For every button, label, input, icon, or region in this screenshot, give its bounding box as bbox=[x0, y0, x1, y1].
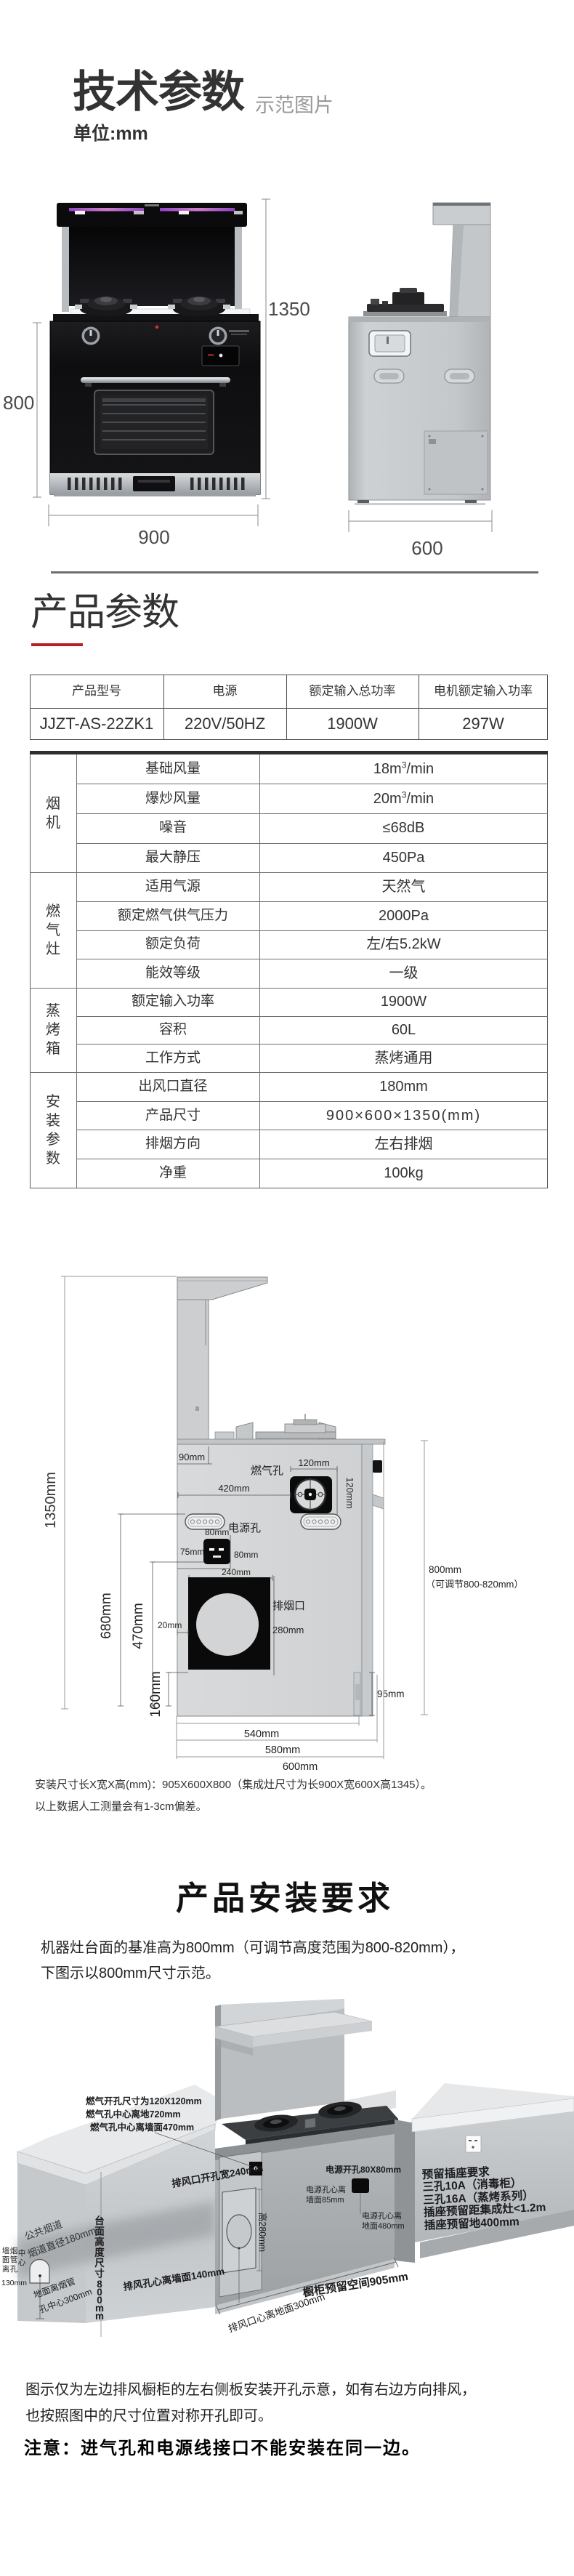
svg-text:580mm: 580mm bbox=[265, 1744, 300, 1756]
svg-text:排烟口: 排烟口 bbox=[272, 1600, 305, 1612]
svg-text:600mm: 600mm bbox=[283, 1761, 318, 1773]
svg-text:燃气开孔尺寸为120X120mm: 燃气开孔尺寸为120X120mm bbox=[86, 2096, 202, 2106]
svg-text:120mm: 120mm bbox=[298, 1457, 329, 1468]
svg-text:电源孔心离: 电源孔心离 bbox=[362, 2210, 402, 2221]
svg-text:280mm: 280mm bbox=[272, 1625, 304, 1635]
svg-text:120mm: 120mm bbox=[344, 1477, 355, 1508]
svg-text:130mm: 130mm bbox=[1, 2279, 27, 2287]
svg-text:420mm: 420mm bbox=[218, 1483, 249, 1494]
svg-text:240mm: 240mm bbox=[222, 1567, 251, 1577]
svg-text:80mm: 80mm bbox=[205, 1527, 229, 1537]
svg-text:墙面85mm: 墙面85mm bbox=[306, 2194, 344, 2205]
svg-text:800: 800 bbox=[3, 392, 34, 414]
svg-text:燃气孔中心离墙面470mm: 燃气孔中心离墙面470mm bbox=[90, 2122, 194, 2133]
svg-text:地面480mm: 地面480mm bbox=[362, 2221, 405, 2231]
svg-text:1350: 1350 bbox=[268, 298, 310, 320]
svg-text:540mm: 540mm bbox=[244, 1728, 279, 1740]
svg-text:20mm: 20mm bbox=[158, 1620, 182, 1630]
svg-text:1350mm: 1350mm bbox=[43, 1472, 59, 1529]
svg-text:燃气孔中心离地720mm: 燃气孔中心离地720mm bbox=[86, 2109, 181, 2120]
svg-text:燃气孔: 燃气孔 bbox=[251, 1464, 283, 1477]
svg-text:电源孔心离: 电源孔心离 bbox=[306, 2184, 346, 2194]
svg-text:680mm: 680mm bbox=[99, 1593, 114, 1638]
svg-text:80mm: 80mm bbox=[234, 1550, 258, 1560]
svg-text:电源开孔80X80mm: 电源开孔80X80mm bbox=[326, 2164, 401, 2175]
svg-text:90mm: 90mm bbox=[179, 1452, 205, 1462]
svg-text:800mm: 800mm bbox=[429, 1564, 461, 1575]
svg-text:75mm: 75mm bbox=[180, 1547, 204, 1557]
svg-text:电源孔: 电源孔 bbox=[228, 1522, 261, 1534]
svg-text:烟管孔: 烟管孔 bbox=[10, 2246, 18, 2274]
svg-text:160mm: 160mm bbox=[148, 1671, 163, 1717]
svg-text:900: 900 bbox=[138, 526, 169, 548]
svg-text:高280mm: 高280mm bbox=[257, 2213, 268, 2252]
svg-text:95mm: 95mm bbox=[377, 1689, 405, 1699]
svg-text:台面高度尺寸800mm: 台面高度尺寸800mm bbox=[94, 2215, 105, 2322]
svg-text:（可调节800-820mm）: （可调节800-820mm） bbox=[426, 1579, 523, 1590]
svg-text:470mm: 470mm bbox=[131, 1603, 146, 1649]
svg-text:墙面离: 墙面离 bbox=[2, 2246, 10, 2274]
svg-text:600: 600 bbox=[411, 537, 442, 559]
